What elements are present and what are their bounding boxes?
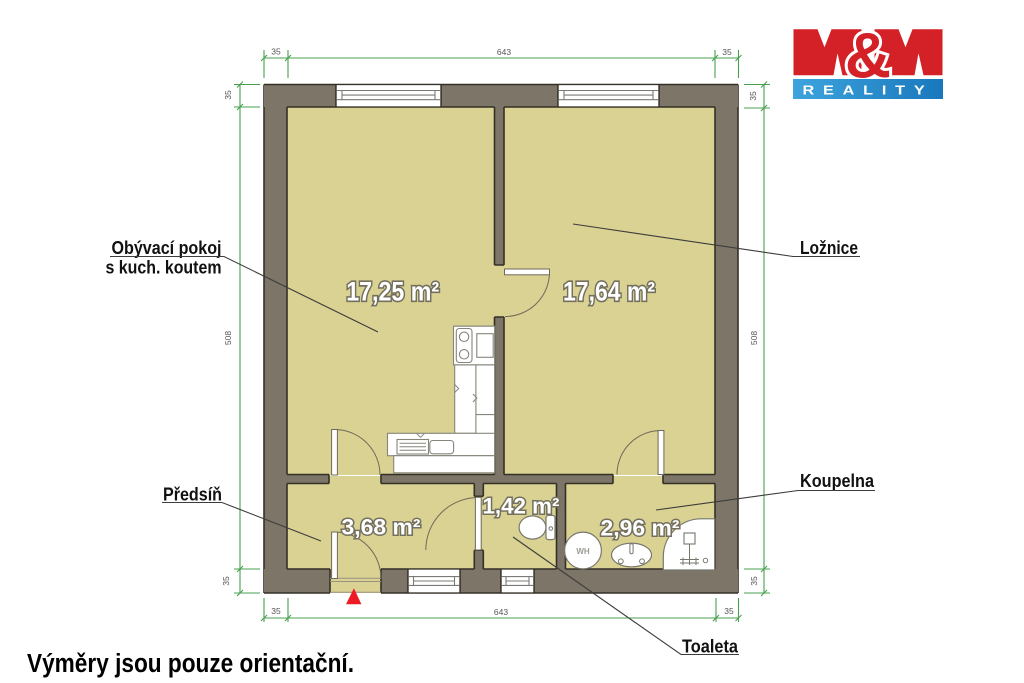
svg-text:Ložnice: Ložnice [800, 237, 858, 258]
svg-text:35: 35 [748, 91, 758, 101]
svg-text:Toaleta: Toaleta [682, 636, 739, 657]
svg-text:2,96 m²: 2,96 m² [601, 516, 680, 541]
svg-text:35: 35 [722, 47, 732, 57]
svg-text:35: 35 [271, 47, 281, 57]
svg-text:35: 35 [749, 576, 759, 586]
svg-text:WH: WH [576, 547, 590, 556]
svg-text:508: 508 [223, 331, 233, 345]
svg-text:s kuch. koutem: s kuch. koutem [106, 257, 222, 278]
svg-text:35: 35 [221, 576, 231, 586]
svg-text:REALITY: REALITY [803, 82, 934, 97]
svg-text:3,68 m²: 3,68 m² [342, 515, 421, 540]
svg-text:17,64 m²: 17,64 m² [563, 277, 655, 307]
svg-text:35: 35 [223, 90, 233, 100]
svg-text:643: 643 [494, 607, 508, 617]
svg-text:35: 35 [724, 606, 734, 616]
svg-text:Předsíň: Předsíň [163, 484, 222, 505]
svg-text:Obývací pokoj: Obývací pokoj [112, 237, 222, 258]
svg-text:643: 643 [497, 47, 511, 57]
svg-text:Výměry jsou pouze orientační.: Výměry jsou pouze orientační. [27, 650, 354, 678]
svg-text:Koupelna: Koupelna [800, 470, 875, 491]
svg-text:508: 508 [749, 331, 759, 345]
svg-text:17,25 m²: 17,25 m² [346, 277, 439, 307]
svg-text:1,42 m²: 1,42 m² [483, 493, 560, 518]
svg-text:35: 35 [271, 606, 281, 616]
